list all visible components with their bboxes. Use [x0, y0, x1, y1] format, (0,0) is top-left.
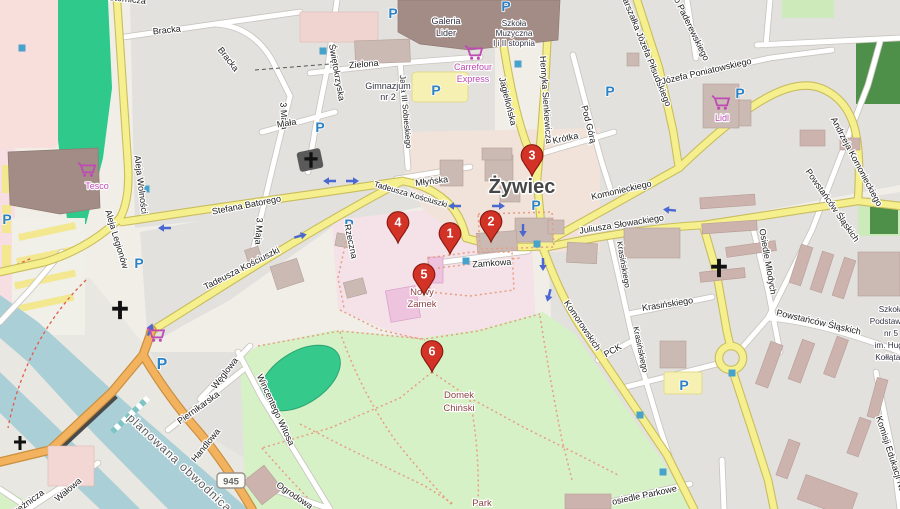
poi-sp5-2: Podstawowa — [870, 317, 900, 326]
street-label-3maja2: 3 Maja — [253, 217, 264, 245]
poi-park: Park — [472, 498, 492, 509]
poi-lidl: Lidl — [715, 113, 729, 123]
school-nr5-building — [858, 252, 900, 296]
route-shield-945: 945 — [217, 473, 245, 488]
marker-3-number: 3 — [529, 149, 536, 163]
parking-icon: P — [134, 255, 143, 271]
poi-galeria-lider-1: Galeria — [431, 16, 460, 26]
poi-nowy-zamek-2: Zamek — [407, 299, 436, 310]
galeria-lider-building — [398, 0, 560, 50]
poi-gimnazjum-1: Gimnazjum — [365, 81, 411, 91]
poi-carrefour-2: Express — [457, 74, 490, 84]
old-castle-building — [476, 231, 517, 254]
poi-sp5-4: im. Hugo — [875, 341, 900, 350]
parking-icon: P — [679, 377, 688, 393]
marker-2-number: 2 — [488, 215, 495, 229]
poi-tesco: Tesco — [85, 181, 109, 191]
poi-domek-chinski-2: Chiński — [443, 403, 474, 414]
parking-icon: P — [388, 5, 397, 21]
parking-icon: P — [501, 0, 510, 14]
marker-6-number: 6 — [429, 345, 436, 359]
poi-sp5-1: Szkoła — [879, 305, 900, 314]
parking-icon: P — [531, 197, 540, 213]
poi-gimnazjum-2: nr 2 — [380, 92, 396, 102]
poi-galeria-lider-2: Lider — [436, 28, 456, 38]
marker-1-number: 1 — [447, 227, 454, 241]
marker-4-number: 4 — [395, 216, 402, 230]
poi-sp5-5: Kołłątaja — [875, 353, 900, 362]
poi-sp5-3: nr 5 — [884, 329, 899, 338]
parking-icon: P — [157, 356, 168, 373]
parking-icon: P — [315, 119, 324, 135]
poi-szkola-muzyczna-2: Muzyczna — [496, 29, 533, 38]
parking-icon: P — [2, 211, 11, 227]
poi-carrefour-1: Carrefour — [454, 62, 492, 72]
parking-icon: P — [431, 82, 440, 98]
town-label-zywiec: Żywiec — [489, 175, 556, 198]
route-number: 945 — [223, 477, 240, 488]
poi-domek-chinski-1: Domek — [444, 390, 474, 401]
poi-szkola-muzyczna-3: I i II stopnia — [493, 39, 535, 48]
parking-icon: P — [605, 83, 614, 99]
poi-szkola-muzyczna-1: Szkoła — [502, 19, 527, 28]
map-canvas[interactable]: P P P P P P P P P P P P — [0, 0, 900, 509]
marker-5-number: 5 — [421, 268, 428, 282]
parking-icon: P — [735, 85, 744, 101]
